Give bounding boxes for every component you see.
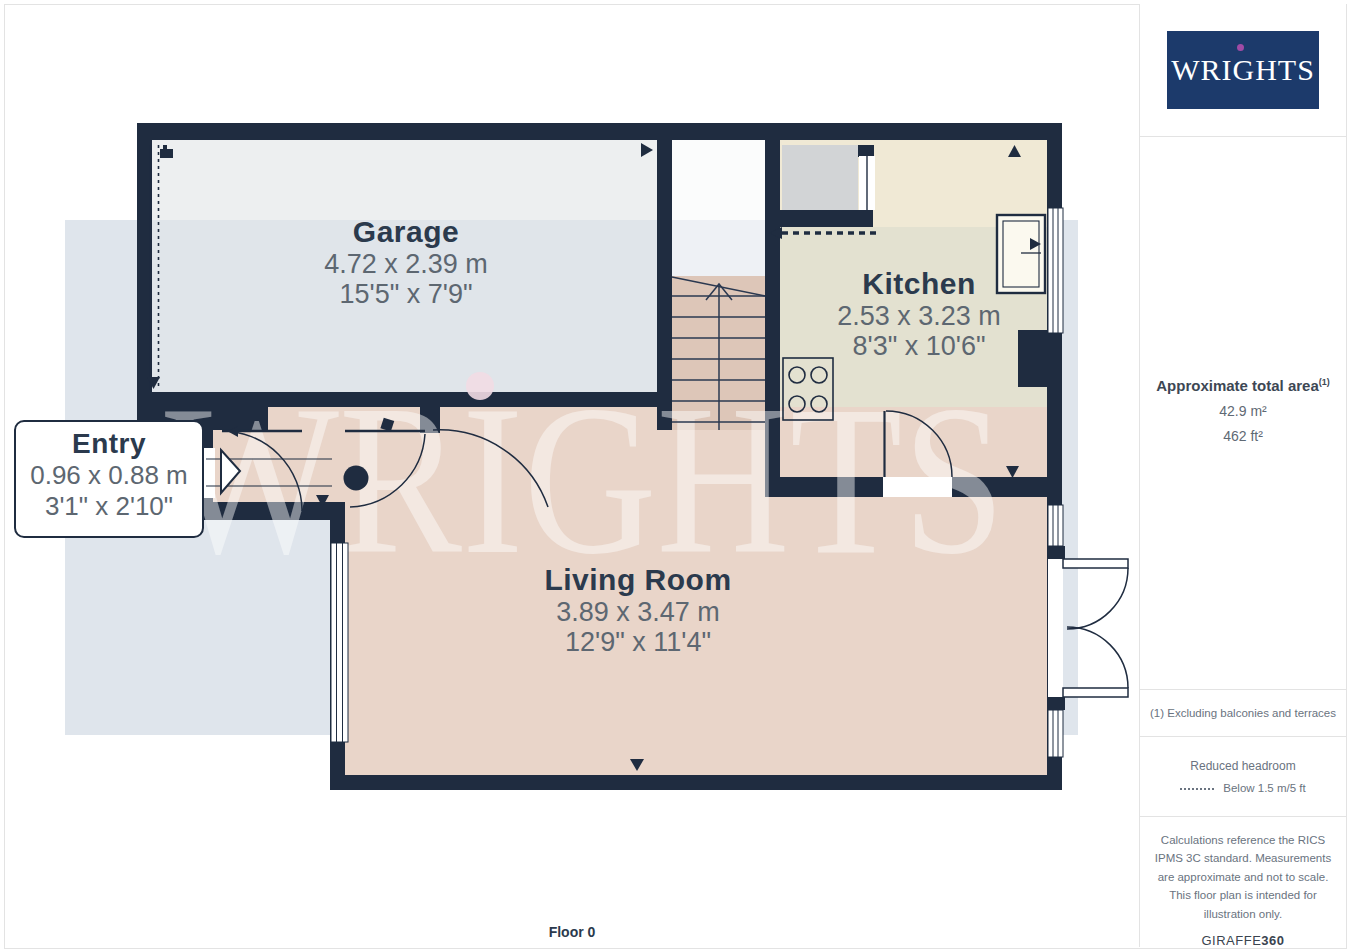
logo-text: WRIGHTS: [1171, 53, 1315, 87]
room-label-living-room: Living Room 3.89 x 3.47 m 12'9" x 11'4": [488, 563, 788, 657]
room-dim-metric: 2.53 x 3.23 m: [769, 301, 1069, 331]
room-dim-imperial: 8'3" x 10'6": [769, 331, 1069, 361]
logo-section: WRIGHTS: [1140, 4, 1346, 137]
door-leaf: [1063, 559, 1128, 568]
logo-dot-icon: [1237, 44, 1244, 51]
floorplan-page: WRIGHTS: [0, 0, 1350, 952]
french-doors: [1047, 546, 1128, 710]
room-label-garage: Garage 4.72 x 2.39 m 15'5" x 7'9": [256, 215, 556, 309]
room-dim-imperial: 15'5" x 7'9": [256, 279, 556, 309]
door-leaf: [1063, 688, 1128, 697]
reduced-headroom-legend: Below 1.5 m/5 ft: [1140, 782, 1346, 794]
room-dim-metric: 4.72 x 2.39 m: [256, 249, 556, 279]
room-dim-imperial: 3'1" x 2'10": [16, 491, 202, 522]
disclaimer-text: Calculations reference the RICS IPMS 3C …: [1153, 831, 1333, 923]
room-name: Entry: [16, 428, 202, 460]
wall-top: [137, 123, 1062, 140]
room-dim-metric: 0.96 x 0.88 m: [16, 460, 202, 491]
brand-360: 360: [1261, 933, 1284, 948]
disclaimer-section: Calculations reference the RICS IPMS 3C …: [1140, 817, 1346, 947]
wall-living-bottom: [330, 775, 1062, 790]
giraffe360-brand: GIRAFFE360: [1153, 933, 1333, 948]
kitchen-cupboard: [782, 145, 858, 210]
floor-label: Floor 0: [472, 924, 672, 940]
wrights-logo: WRIGHTS: [1167, 31, 1319, 109]
footnote-marker: (1): [1319, 377, 1330, 387]
room-name: Living Room: [488, 563, 788, 597]
room-label-entry-callout: Entry 0.96 x 0.88 m 3'1" x 2'10": [14, 420, 204, 538]
reduced-headroom-section: Reduced headroom Below 1.5 m/5 ft: [1140, 737, 1346, 817]
wall-cupboard-stub: [858, 145, 874, 157]
room-dim-metric: 3.89 x 3.47 m: [488, 597, 788, 627]
total-area-imperial: 462 ft²: [1140, 428, 1346, 444]
cupboard-door: [859, 156, 875, 210]
footnote-section: (1) Excluding balconies and terraces: [1140, 690, 1346, 737]
total-area-title: Approximate total area(1): [1140, 377, 1346, 394]
total-area-section: Approximate total area(1) 42.9 m² 462 ft…: [1140, 137, 1346, 690]
total-area-metric: 42.9 m²: [1140, 403, 1346, 419]
wall-cupboard-bottom: [765, 210, 873, 227]
room-dim-imperial: 12'9" x 11'4": [488, 627, 788, 657]
room-name: Kitchen: [769, 267, 1069, 301]
stair-void: [672, 140, 765, 220]
brand-giraffe: GIRAFFE: [1201, 933, 1261, 948]
stair-void-lower: [672, 220, 765, 278]
entry-post: [344, 466, 369, 491]
dotted-line-icon: [1180, 788, 1214, 790]
garage-floor: [152, 140, 657, 220]
reduced-headroom-legend-text: Below 1.5 m/5 ft: [1223, 782, 1305, 794]
room-label-kitchen: Kitchen 2.53 x 3.23 m 8'3" x 10'6": [769, 267, 1069, 361]
reduced-headroom-title: Reduced headroom: [1140, 759, 1346, 773]
room-name: Garage: [256, 215, 556, 249]
info-sidebar: WRIGHTS Approximate total area(1) 42.9 m…: [1139, 4, 1346, 947]
total-area-title-text: Approximate total area: [1156, 377, 1319, 394]
